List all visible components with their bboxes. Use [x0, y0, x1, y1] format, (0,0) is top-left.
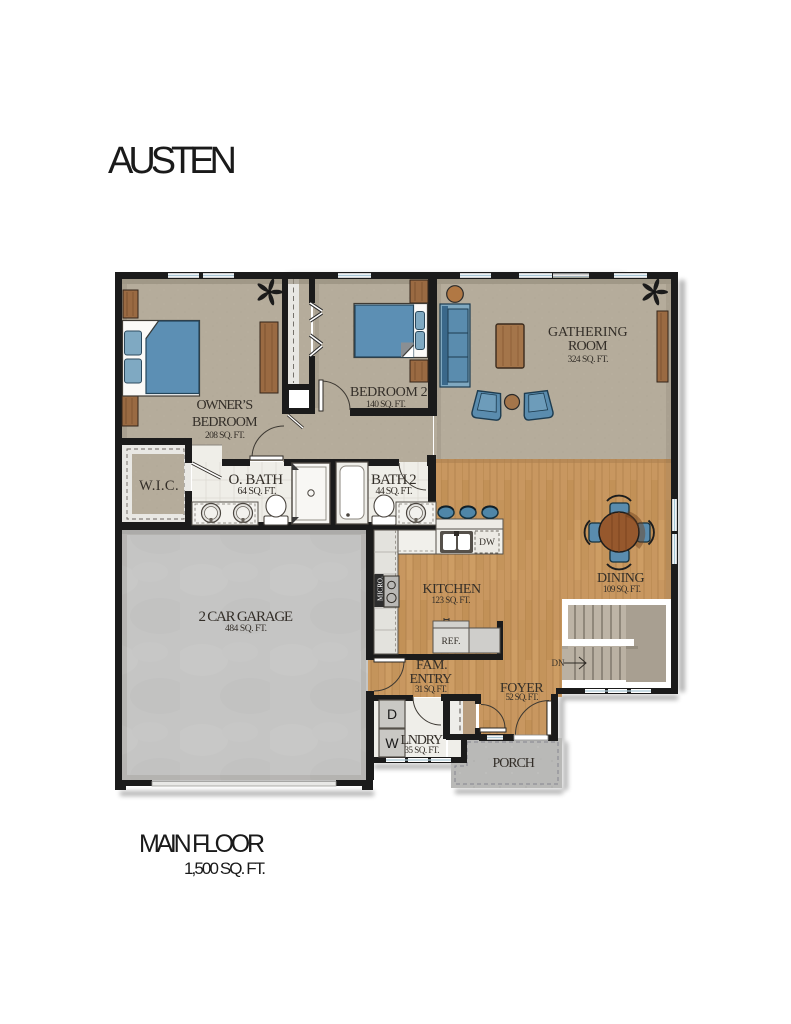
svg-text:484 SQ. FT.: 484 SQ. FT. — [225, 624, 267, 634]
svg-text:W.I.C.: W.I.C. — [139, 478, 179, 494]
svg-text:64 SQ. FT.: 64 SQ. FT. — [238, 486, 277, 497]
svg-text:1,500 SQ. FT.: 1,500 SQ. FT. — [184, 859, 266, 878]
svg-text:PORCH: PORCH — [493, 756, 536, 771]
svg-text:AUSTEN: AUSTEN — [108, 140, 237, 182]
svg-text:31 SQ. FT.: 31 SQ. FT. — [415, 684, 447, 694]
svg-text:MAIN FLOOR: MAIN FLOOR — [139, 830, 265, 858]
svg-text:DN: DN — [552, 658, 565, 668]
svg-text:52 SQ. FT.: 52 SQ. FT. — [506, 692, 539, 702]
svg-text:140 SQ. FT.: 140 SQ. FT. — [366, 400, 406, 410]
svg-text:REF.: REF. — [441, 637, 460, 647]
svg-text:BEDROOM: BEDROOM — [192, 415, 258, 430]
svg-text:MICRO.: MICRO. — [377, 576, 385, 601]
svg-text:DW: DW — [479, 538, 495, 548]
svg-text:2 CAR GARAGE: 2 CAR GARAGE — [199, 609, 294, 625]
svg-text:OWNER’S: OWNER’S — [197, 398, 254, 413]
svg-text:W: W — [385, 735, 399, 751]
svg-text:109 SQ. FT.: 109 SQ. FT. — [603, 584, 641, 594]
svg-text:208 SQ. FT.: 208 SQ. FT. — [205, 431, 245, 441]
svg-text:FAM.: FAM. — [416, 658, 448, 673]
svg-text:ROOM: ROOM — [568, 339, 608, 354]
svg-text:35 SQ. FT.: 35 SQ. FT. — [405, 745, 440, 755]
svg-text:44 SQ. FT.: 44 SQ. FT. — [376, 486, 413, 497]
svg-text:D: D — [387, 706, 397, 722]
svg-text:123 SQ. FT.: 123 SQ. FT. — [432, 595, 471, 605]
svg-text:BEDROOM 2: BEDROOM 2 — [350, 385, 428, 400]
svg-text:324 SQ. FT.: 324 SQ. FT. — [568, 355, 609, 365]
svg-text:GATHERING: GATHERING — [548, 325, 628, 340]
